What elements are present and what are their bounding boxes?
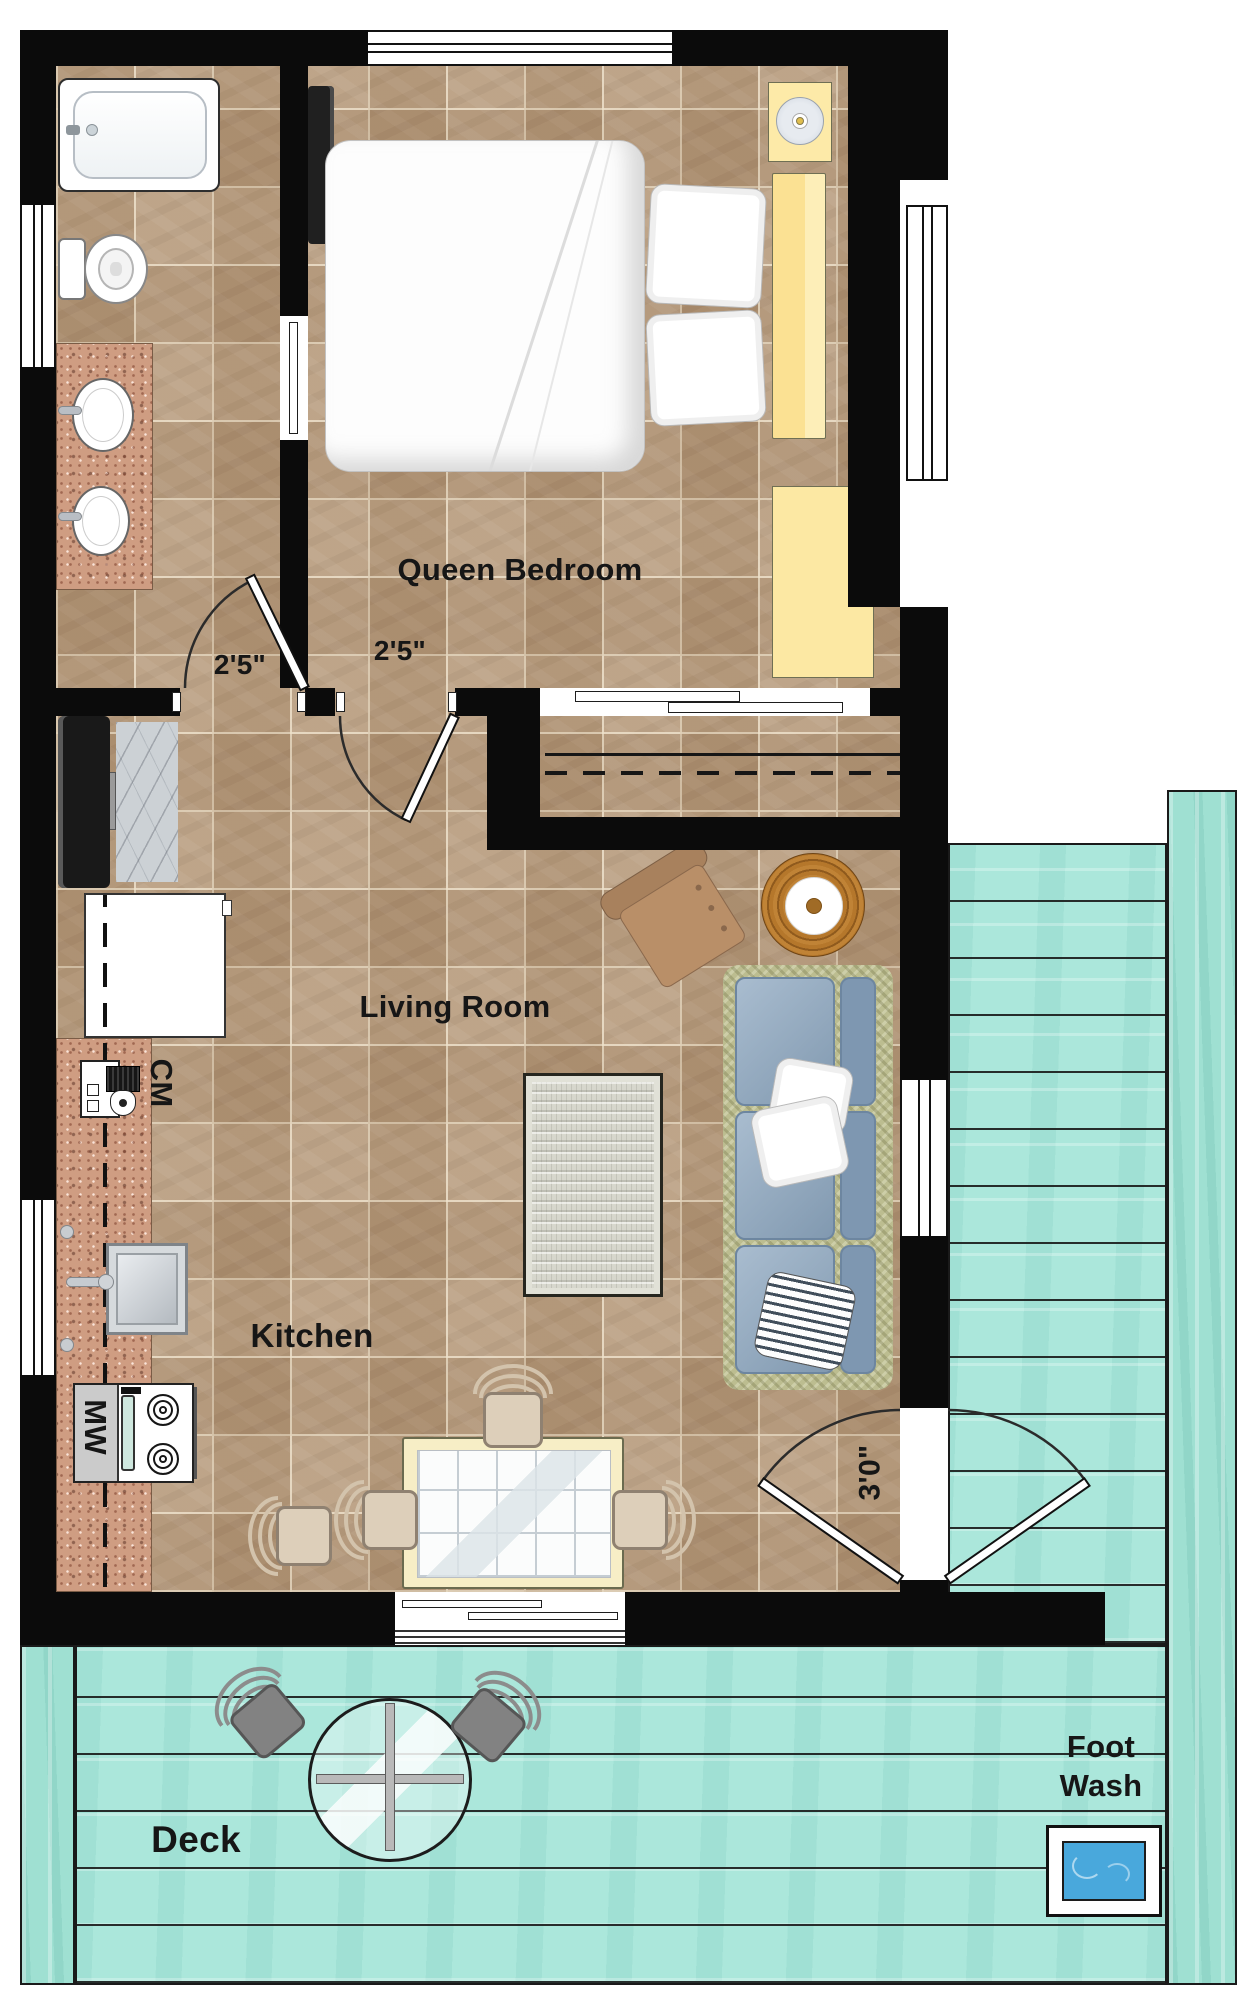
dining-chair xyxy=(608,1478,696,1562)
side-table-center xyxy=(806,898,822,914)
wall-closet-left xyxy=(487,716,540,817)
toilet-flush-icon xyxy=(110,262,122,276)
room-label-foot-wash: Foot Wash xyxy=(1036,1728,1166,1806)
patio-slider-panel xyxy=(402,1600,542,1608)
appliance-label-coffee-maker: CM xyxy=(144,1052,178,1114)
window-top xyxy=(368,30,672,66)
counter-dashed-line xyxy=(103,895,107,1587)
foot-wash-water xyxy=(1062,1841,1146,1901)
water-swirl xyxy=(1072,1853,1102,1879)
wall-corner-block xyxy=(848,30,948,180)
door-jamb xyxy=(336,692,345,712)
stove-controls xyxy=(121,1387,141,1394)
table-lamp-finial xyxy=(796,117,804,125)
chair-seat xyxy=(276,1506,332,1566)
stove-burner-icon xyxy=(147,1443,179,1475)
coffee-maker-icon xyxy=(80,1060,144,1120)
toilet-bowl xyxy=(84,234,148,304)
bed-headboard xyxy=(772,173,826,439)
dim-label-bathroom-door: 2'5" xyxy=(200,650,280,681)
sofa-back-cushion xyxy=(840,1111,876,1240)
bathtub-drain-icon xyxy=(86,124,98,136)
patio-slider-track xyxy=(395,1642,625,1644)
living-tv xyxy=(58,716,110,888)
pocket-door-panel xyxy=(289,322,298,434)
coffee-maker-button xyxy=(87,1100,99,1112)
coffee-maker-button xyxy=(87,1084,99,1096)
stove-side-rail xyxy=(194,1387,197,1479)
closet-rod-dashed-line xyxy=(545,771,903,775)
bathtub xyxy=(58,78,220,192)
closet-bypass-door xyxy=(668,702,843,713)
appliance-label-microwave: MW xyxy=(78,1395,112,1459)
bathroom-faucet-2-icon xyxy=(58,512,82,521)
wicker-side-table xyxy=(761,853,865,957)
sofa-striped-pillow xyxy=(752,1270,858,1373)
entry-door-opening xyxy=(900,1408,948,1580)
window-kitchen xyxy=(20,1200,56,1375)
duvet-fold-line xyxy=(513,140,617,472)
deck-left-border-plank xyxy=(20,1645,75,1985)
coffee-maker-top xyxy=(106,1066,140,1092)
room-label-kitchen: Kitchen xyxy=(222,1318,402,1354)
coffee-maker-carafe-lid xyxy=(119,1099,127,1107)
wall-hall-seg-3 xyxy=(870,688,900,716)
bed-pillow xyxy=(645,183,767,309)
bed-duvet xyxy=(325,140,645,472)
dining-chair xyxy=(471,1364,555,1452)
sink-basin xyxy=(116,1253,178,1325)
room-label-deck: Deck xyxy=(136,1820,256,1861)
wall-hall-seg-2 xyxy=(455,688,540,716)
toilet-tank xyxy=(58,238,86,300)
wall-hall-stub xyxy=(305,688,335,716)
kitchen-faucet-base xyxy=(98,1274,114,1290)
closet-shelf-line xyxy=(545,753,903,756)
bathroom-sink-1 xyxy=(72,378,134,452)
dining-chair xyxy=(248,1494,336,1578)
wall-bathroom-partition-upper xyxy=(280,66,308,316)
water-swirl xyxy=(1104,1863,1130,1885)
chair-seat xyxy=(483,1392,543,1448)
dining-chair xyxy=(334,1478,422,1562)
patio-slider-track xyxy=(395,1630,625,1632)
oven-door-window xyxy=(121,1395,135,1471)
faucet-handle-icon xyxy=(60,1225,74,1239)
dim-label-bedroom-door: 2'5" xyxy=(360,636,440,667)
bathtub-faucet-icon xyxy=(66,125,80,135)
sink-basin-line xyxy=(82,496,120,546)
wall-closet-bottom xyxy=(487,817,900,850)
sink-basin-line xyxy=(82,388,124,442)
area-rug xyxy=(523,1073,663,1297)
chair-seat xyxy=(612,1490,668,1550)
room-label-living-room: Living Room xyxy=(326,990,584,1024)
dining-table xyxy=(402,1437,624,1589)
kitchen-sink xyxy=(106,1243,188,1335)
wall-bathroom-partition-lower xyxy=(280,440,308,688)
window-bathroom xyxy=(20,205,56,367)
faucet-handle-icon xyxy=(60,1338,74,1352)
deck-right-planks xyxy=(948,843,1167,1645)
bathroom-sink-2 xyxy=(72,486,130,556)
dim-label-entry-door: 3'0" xyxy=(854,1431,887,1515)
tv-stand-mat xyxy=(116,722,178,882)
room-label-queen-bedroom: Queen Bedroom xyxy=(385,553,655,587)
bathroom-faucet-1-icon xyxy=(58,406,82,415)
dining-table-glass-top xyxy=(417,1450,611,1578)
duvet-fold-line xyxy=(469,140,602,472)
door-jamb xyxy=(448,692,457,712)
deck-right-border-plank xyxy=(1167,790,1237,1985)
refrigerator-handle xyxy=(222,900,232,916)
window-living xyxy=(900,1080,948,1236)
patio-slider-track xyxy=(395,1636,625,1638)
floor-plan: Queen Bedroom Living Room Kitchen Deck F… xyxy=(0,0,1252,2000)
foot-wash-basin xyxy=(1046,1825,1162,1917)
closet-bypass-door xyxy=(575,691,740,702)
door-jamb xyxy=(297,692,306,712)
chair-seat xyxy=(362,1490,418,1550)
wall-hall-seg-1 xyxy=(56,688,180,716)
patio-slider-panel xyxy=(468,1612,618,1620)
door-jamb xyxy=(172,692,181,712)
window-bedroom xyxy=(906,205,948,481)
stove-burner-icon xyxy=(147,1394,179,1426)
bed-pillow xyxy=(645,309,767,427)
table-cross-bar xyxy=(385,1703,395,1851)
